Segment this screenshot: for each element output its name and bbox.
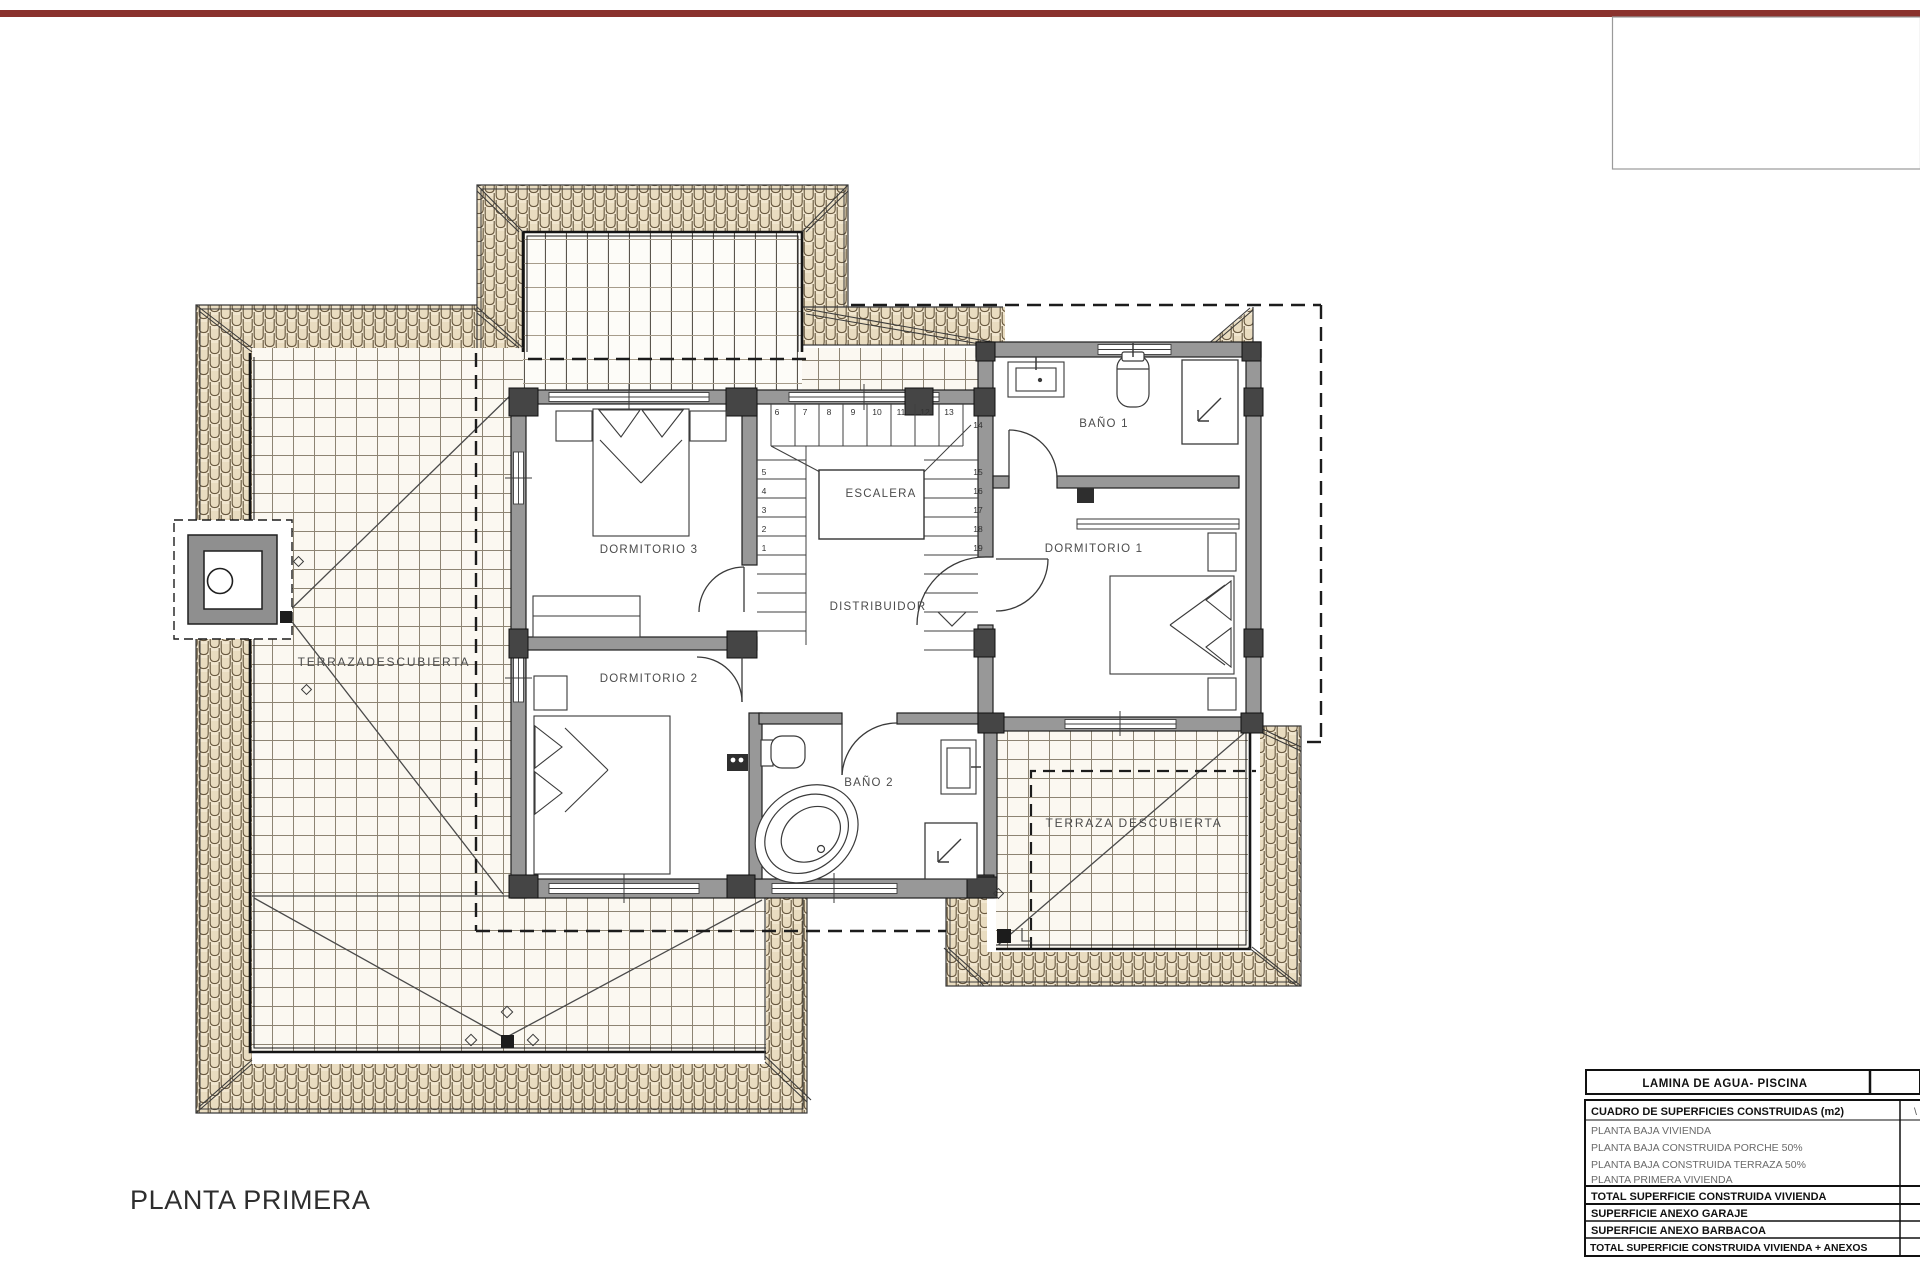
svg-text:8: 8 xyxy=(827,407,832,417)
svg-text:PLANTA PRIMERA VIVIENDA: PLANTA PRIMERA VIVIENDA xyxy=(1591,1174,1733,1186)
svg-text:16: 16 xyxy=(973,486,983,496)
svg-text:PLANTA BAJA CONSTRUIDA PORCHE: PLANTA BAJA CONSTRUIDA PORCHE 50% xyxy=(1591,1142,1803,1154)
svg-text:6: 6 xyxy=(775,407,780,417)
svg-text:10: 10 xyxy=(872,407,882,417)
svg-text:LAMINA DE AGUA- PISCINA: LAMINA DE AGUA- PISCINA xyxy=(1642,1078,1807,1090)
svg-text:13: 13 xyxy=(944,407,954,417)
svg-text:PLANTA PRIMERA: PLANTA PRIMERA xyxy=(130,1185,370,1215)
svg-text:ESCALERA: ESCALERA xyxy=(846,488,917,500)
svg-text:DISTRIBUIDOR: DISTRIBUIDOR xyxy=(830,601,927,613)
svg-text:BAÑO 2: BAÑO 2 xyxy=(844,776,893,789)
svg-text:SUPERFICIE ANEXO GARAJE: SUPERFICIE ANEXO GARAJE xyxy=(1591,1208,1748,1220)
svg-text:15: 15 xyxy=(973,467,983,477)
svg-text:3: 3 xyxy=(762,505,767,515)
svg-text:17: 17 xyxy=(973,505,983,515)
svg-text:4: 4 xyxy=(762,486,767,496)
svg-text:2: 2 xyxy=(762,524,767,534)
svg-text:CUADRO DE SUPERFICIES CONSTRUI: CUADRO DE SUPERFICIES CONSTRUIDAS (m2) xyxy=(1591,1106,1844,1118)
svg-text:18: 18 xyxy=(973,524,983,534)
svg-text:TOTAL SUPERFICIE CONSTRUIDA VI: TOTAL SUPERFICIE CONSTRUIDA VIVIENDA + A… xyxy=(1590,1243,1867,1254)
svg-text:12: 12 xyxy=(920,407,930,417)
svg-text:DORMITORIO 2: DORMITORIO 2 xyxy=(600,673,699,685)
svg-text:BAÑO 1: BAÑO 1 xyxy=(1079,417,1128,430)
svg-text:14: 14 xyxy=(973,420,983,430)
svg-text:19: 19 xyxy=(973,543,983,553)
svg-text:PLANTA BAJA VIVIENDA: PLANTA BAJA VIVIENDA xyxy=(1591,1125,1711,1137)
svg-text:TERRAZADESCUBIERTA: TERRAZADESCUBIERTA xyxy=(298,655,471,669)
svg-text:DORMITORIO 1: DORMITORIO 1 xyxy=(1045,543,1144,555)
svg-text:1: 1 xyxy=(762,543,767,553)
svg-text:TERRAZA DESCUBIERTA: TERRAZA DESCUBIERTA xyxy=(1045,816,1222,830)
svg-text:5: 5 xyxy=(762,467,767,477)
svg-text:DORMITORIO 3: DORMITORIO 3 xyxy=(600,544,699,556)
svg-text:TOTAL SUPERFICIE CONSTRUIDA VI: TOTAL SUPERFICIE CONSTRUIDA VIVIENDA xyxy=(1591,1191,1827,1203)
svg-text:SUPERFICIE ANEXO BARBACOA: SUPERFICIE ANEXO BARBACOA xyxy=(1591,1225,1766,1237)
svg-text:7: 7 xyxy=(803,407,808,417)
svg-text:PLANTA BAJA CONSTRUIDA TERRAZA: PLANTA BAJA CONSTRUIDA TERRAZA 50% xyxy=(1591,1159,1806,1171)
svg-text:\: \ xyxy=(1914,1106,1917,1118)
svg-text:11: 11 xyxy=(897,407,906,417)
svg-text:9: 9 xyxy=(851,407,856,417)
